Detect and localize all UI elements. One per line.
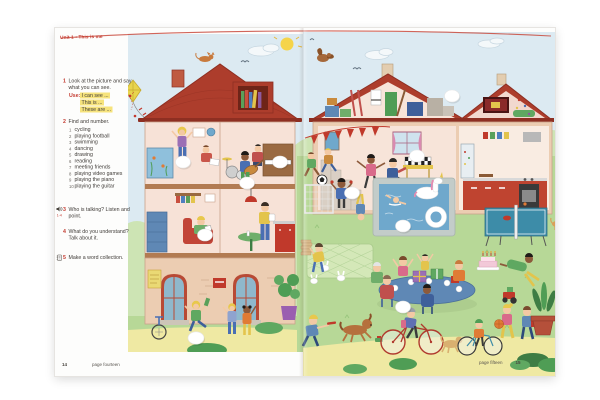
list-item: 10playing the guitar xyxy=(69,183,133,189)
kitchen-room xyxy=(459,126,549,210)
audio-icon: 1-4 xyxy=(56,207,63,218)
exercise-text: Make a word collection. xyxy=(69,255,134,262)
use-phrase: This is ... xyxy=(80,100,104,106)
tv-screen xyxy=(483,97,509,113)
right-page-label: page fifteen xyxy=(479,360,503,365)
exercise-column: 1 Look at the picture and say what you c… xyxy=(63,58,133,370)
swimming-pool xyxy=(373,172,455,236)
use-phrases-box: Use: I can see ... This is ... These are… xyxy=(64,93,134,113)
use-label: Use: xyxy=(69,93,80,113)
notebook-icon xyxy=(56,255,63,264)
exercise-3: 1-4 3 Who is talking? Listen and point. xyxy=(63,207,133,220)
aquarium xyxy=(147,148,173,178)
exercise-text: Find and number. xyxy=(69,119,134,126)
unit-header: Unit 1 • This is me xyxy=(60,34,103,41)
football xyxy=(317,175,327,185)
ground-floor-front xyxy=(145,258,300,325)
left-page-number: 14 xyxy=(62,362,67,367)
right-page-footer: page fifteen15 xyxy=(479,360,555,372)
use-phrase: I can see ... xyxy=(80,93,110,99)
bush xyxy=(255,322,283,334)
activity-list: 1cycling 2playing football 3swimming 4da… xyxy=(69,127,133,190)
exercise-text: Look at the picture and say what you can… xyxy=(69,78,134,91)
mailbox xyxy=(213,278,226,288)
hedge-and-rabbits xyxy=(301,240,373,284)
left-page-footer: 14page fourteen xyxy=(62,362,202,374)
open-book-pages: Unit 1 • This is me 1 Look at the pictur… xyxy=(55,28,555,376)
exercise-5: 5 Make a word collection. xyxy=(63,255,133,262)
exercise-4: 4 What do you understand? Talk about it. xyxy=(63,229,133,242)
exercise-text: What do you understand? Talk about it. xyxy=(69,229,134,242)
dormer-with-books xyxy=(233,82,273,113)
book-spread-scan: Unit 1 • This is me 1 Look at the pictur… xyxy=(0,0,600,400)
use-phrase: These are ... xyxy=(80,107,112,113)
exercise-1: 1 Look at the picture and say what you c… xyxy=(63,78,133,91)
bush xyxy=(187,343,227,357)
left-page-label: page fourteen xyxy=(92,362,120,367)
audio-track-number: 1-4 xyxy=(56,214,63,218)
chimney xyxy=(172,70,184,87)
right-page-number: 15 xyxy=(516,360,521,365)
game-couch xyxy=(513,110,535,117)
exercise-text: Who is talking? Listen and point. xyxy=(69,207,134,220)
exercise-2: 2 Find and number. xyxy=(63,119,133,126)
